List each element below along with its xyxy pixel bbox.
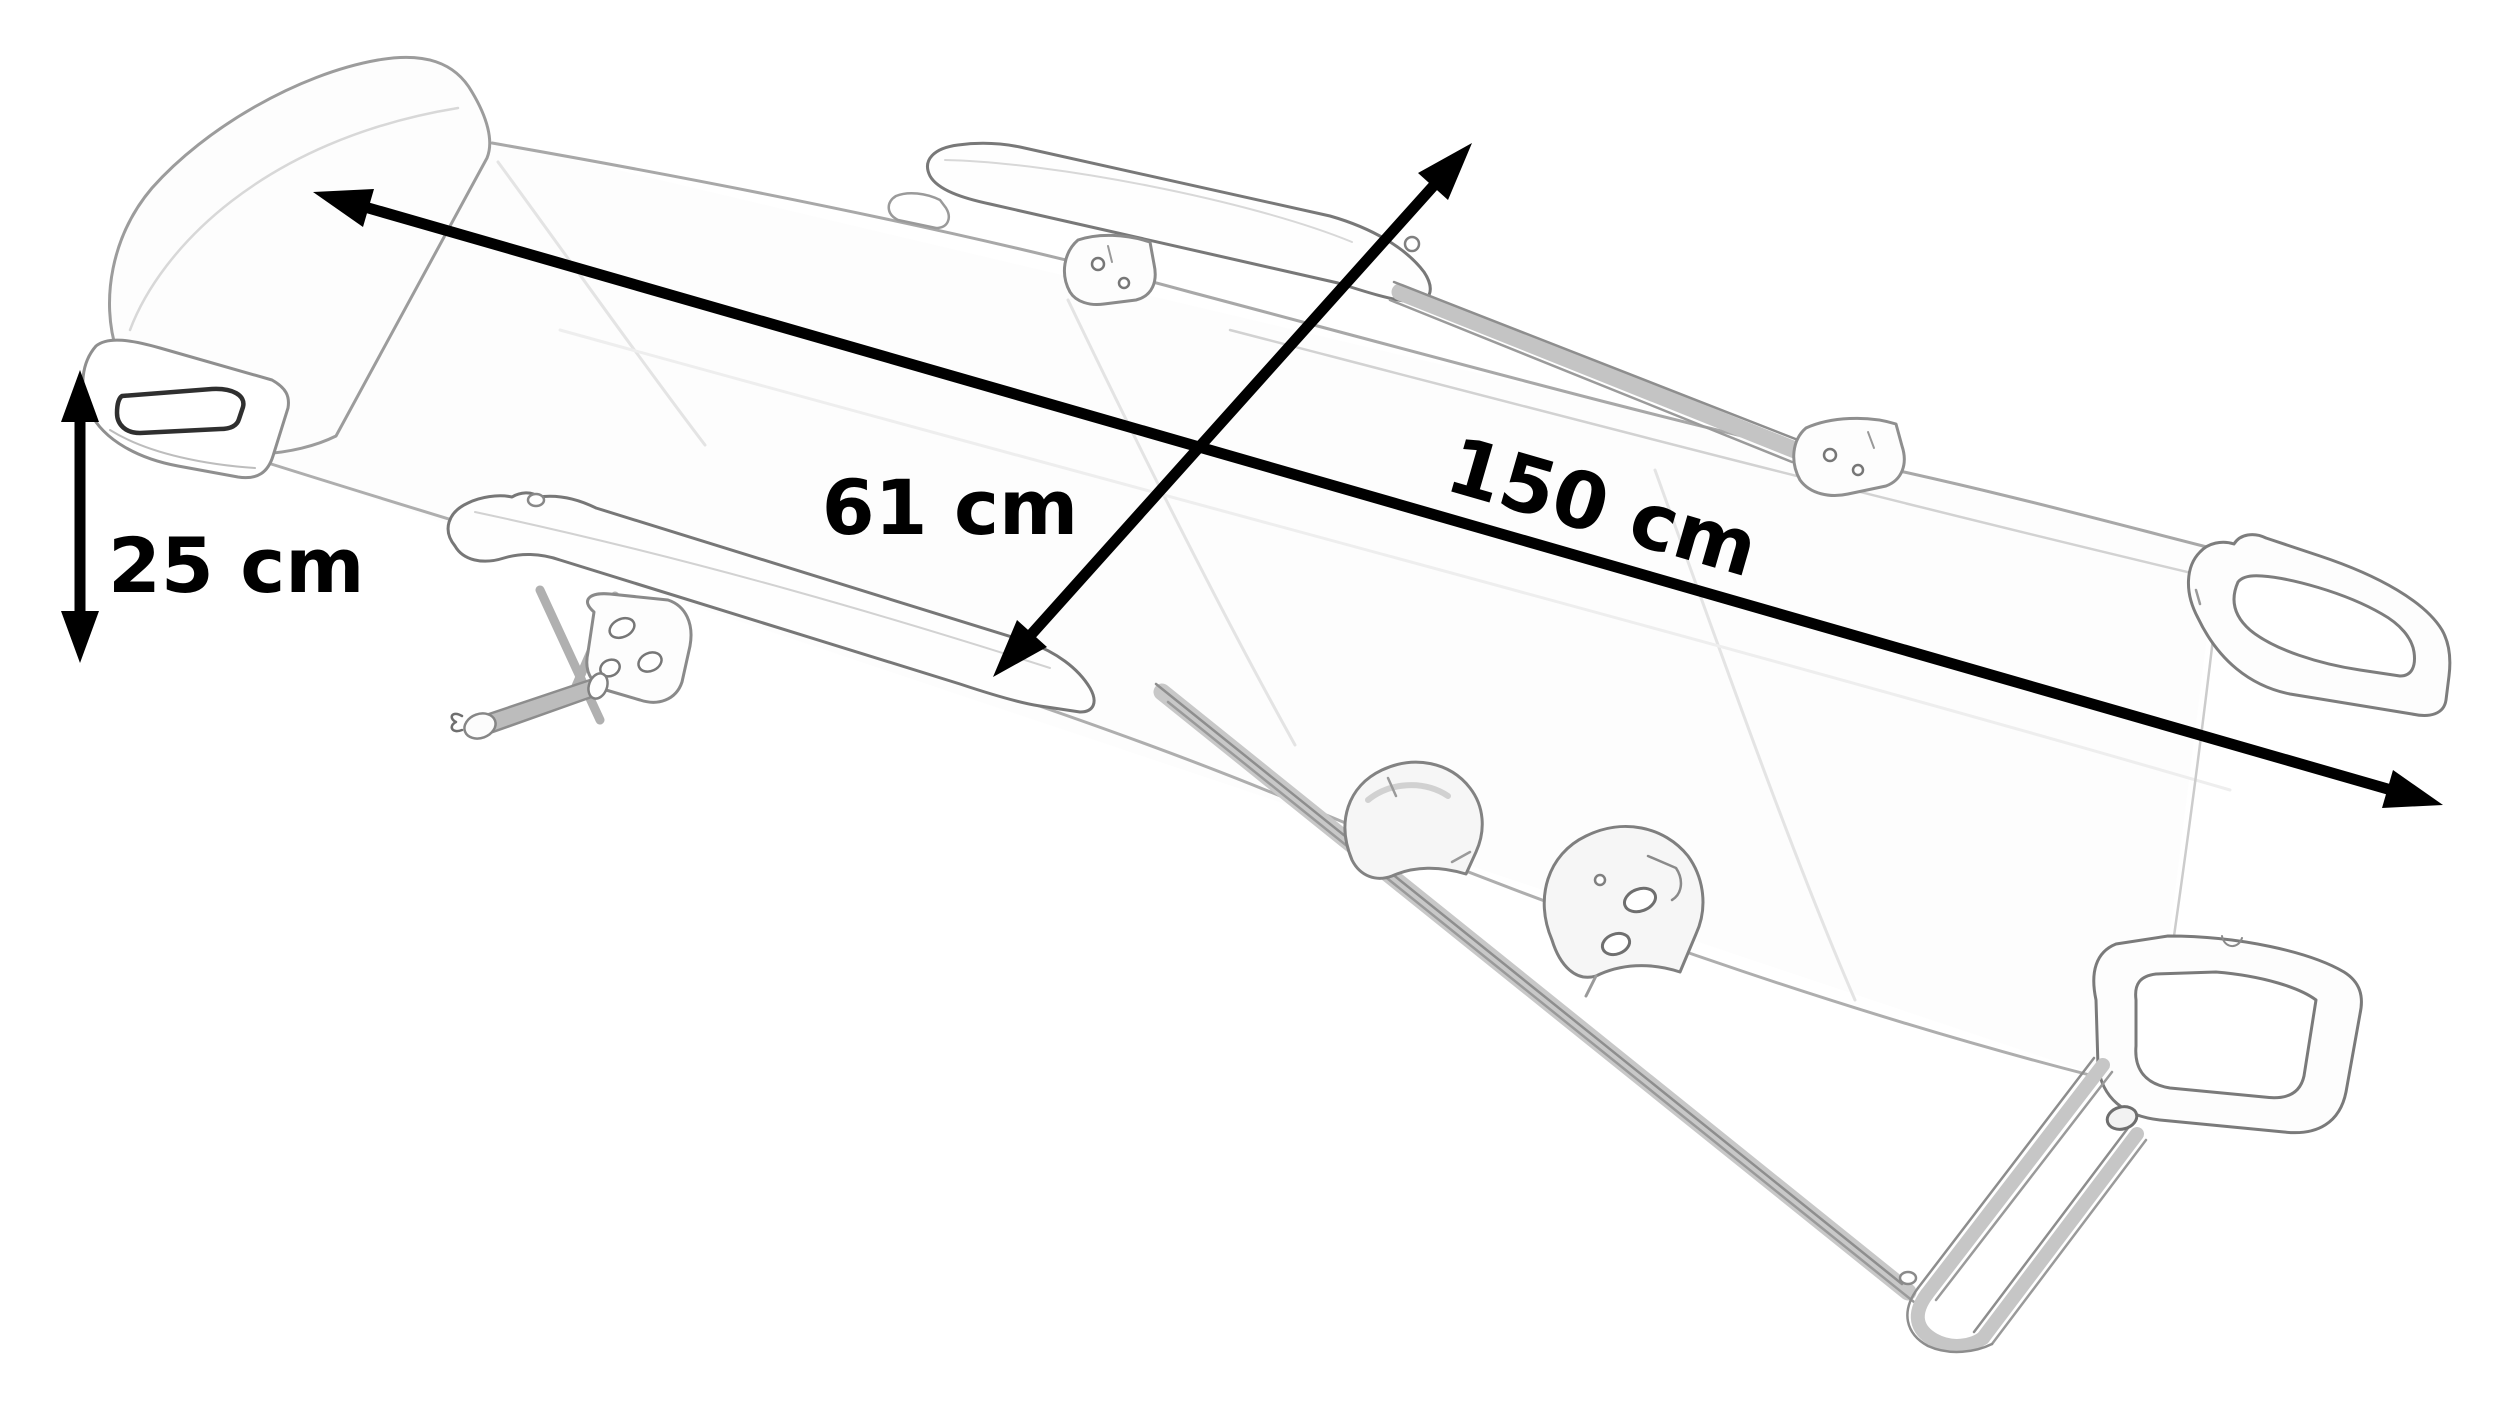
folding-leg-mechanism (452, 590, 691, 743)
carry-handle-slot (117, 389, 243, 433)
diagram-canvas: 25 cm 61 cm 150 cm (0, 0, 2500, 1415)
arrowhead-length-right (2382, 770, 2443, 808)
recline-disc-bracket-front (1345, 762, 1482, 878)
foot-loop-bottom (2094, 936, 2362, 1133)
recline-disc-bracket-rear (1544, 826, 1703, 996)
armrest-rivet (1405, 237, 1419, 251)
hinge-bracket-center (1064, 235, 1155, 304)
hinge-bracket-right (1794, 418, 1905, 495)
armrest-knob (528, 494, 544, 506)
arrowhead-height-bottom (61, 611, 99, 663)
rear-leg (1900, 1058, 2146, 1352)
dimension-label-height: 25 cm (108, 521, 364, 610)
foot-loop-top (2188, 535, 2449, 716)
dimension-label-width: 61 cm (822, 463, 1078, 552)
lounger-dimension-diagram: 25 cm 61 cm 150 cm (0, 0, 2500, 1415)
dimension-arrow-height (61, 370, 99, 663)
